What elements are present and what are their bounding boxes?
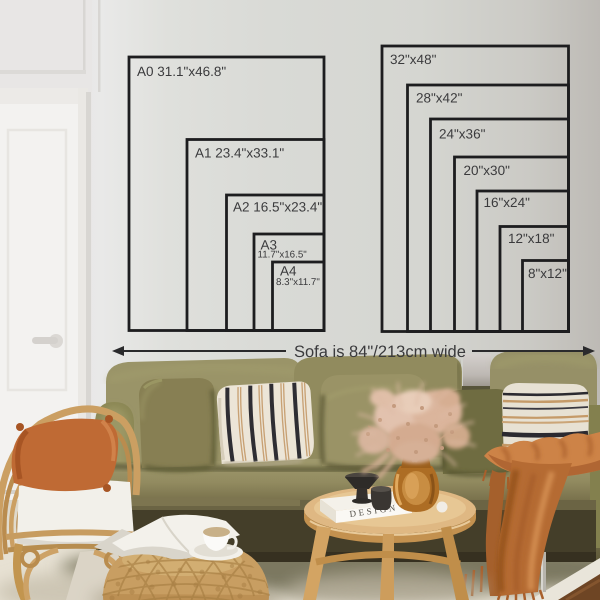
svg-text:16"x24": 16"x24" — [484, 195, 531, 210]
svg-text:Sofa is 84"/213cm wide: Sofa is 84"/213cm wide — [294, 343, 466, 361]
svg-text:11.7"x16.5": 11.7"x16.5" — [258, 250, 308, 261]
svg-text:A2 16.5"x23.4": A2 16.5"x23.4" — [233, 200, 322, 215]
svg-text:8"x12": 8"x12" — [528, 266, 567, 281]
svg-text:8.3"x11.7": 8.3"x11.7" — [276, 277, 320, 288]
svg-text:28"x42": 28"x42" — [416, 91, 463, 106]
svg-text:24"x36": 24"x36" — [439, 127, 486, 142]
svg-text:A1 23.4"x33.1": A1 23.4"x33.1" — [195, 146, 284, 161]
svg-text:20"x30": 20"x30" — [464, 163, 511, 178]
svg-text:A0 31.1"x46.8": A0 31.1"x46.8" — [137, 64, 226, 79]
svg-text:12"x18": 12"x18" — [508, 231, 555, 246]
svg-text:32"x48": 32"x48" — [390, 52, 437, 67]
